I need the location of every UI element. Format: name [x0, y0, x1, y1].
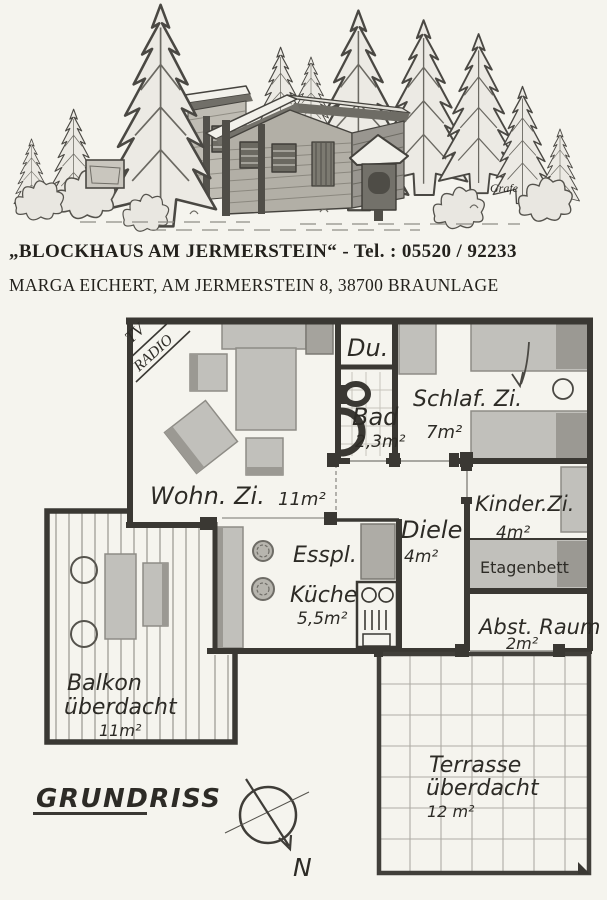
bed-1-pillow [556, 323, 588, 369]
annex-post [203, 116, 210, 198]
balkon-label: Balkon [67, 671, 142, 696]
plan-title: GRUNDRISS [33, 784, 222, 815]
floor-plan: TV RADIO Du. Bad 2,3m² Schlaf. Zi. 7m² W… [0, 310, 607, 900]
sofa-bed [236, 348, 296, 430]
porch-post-left [222, 120, 230, 216]
kueche-label: Küche [290, 583, 357, 608]
room-schlafzimmer-label: Schlaf. Zi. [413, 387, 522, 412]
cabinet-top [306, 323, 333, 354]
room-wohnzimmer-area: 11m² [278, 489, 326, 510]
bed-2-pillow [556, 413, 588, 459]
front-window-1 [240, 142, 260, 168]
kitchen-cabinet-top [361, 524, 395, 579]
room-kinderzimmer-area: 4m² [496, 523, 530, 543]
toilet-icon [344, 384, 368, 404]
compass: N [225, 779, 312, 882]
well-opening [368, 172, 390, 194]
grundriss-underline [33, 812, 147, 815]
kitchen-cabinet-left-edge [217, 527, 223, 648]
terrasse-label: Terrasse [429, 753, 521, 778]
artist-signature: Grafe [490, 181, 519, 195]
cabin [178, 86, 410, 221]
balcony-chair-2 [71, 621, 97, 647]
kueche-area: 5,5m² [297, 609, 348, 629]
room-wohnzimmer-label: Wohn. Zi. [150, 482, 265, 510]
balcony-chair-1 [71, 557, 97, 583]
grundriss-title: GRUNDRISS [36, 784, 222, 814]
letterhead: „BLOCKHAUS AM JERMERSTEIN“ - Tel. : 0552… [9, 241, 517, 296]
kitchen-stool-2 [252, 578, 274, 600]
room-abstellraum-label: Abst. Raum [477, 615, 600, 639]
balcony-table [105, 554, 136, 639]
house-title-and-phone: „BLOCKHAUS AM JERMERSTEIN“ - Tel. : 0552… [9, 241, 517, 263]
compass-north-label: N [293, 853, 312, 882]
room-schlafzimmer-area: 7m² [426, 422, 462, 443]
cabin-illustration: Grafe [0, 0, 607, 238]
room-bad-label: Bad [352, 403, 399, 431]
kueche-essplatz-label: Esspl. [293, 543, 357, 568]
bedroom-stool [553, 379, 573, 399]
balkon-label-2: überdacht [64, 695, 178, 720]
room-dusche-label: Du. [347, 334, 388, 362]
etagenbett-label: Etagenbett [480, 558, 569, 577]
scanned-leaflet-page: Grafe „BLOCKHAUS AM JERMERSTEIN“ - Tel. … [0, 0, 607, 900]
room-diele-area: 4m² [404, 547, 438, 567]
room-kinderzimmer-label: Kinder.Zi. [475, 492, 574, 516]
porch-post-mid [258, 124, 265, 214]
terrasse-area: 12 m² [427, 802, 475, 821]
room-diele-label: Diele [401, 516, 462, 544]
kitchen-stool-1 [253, 541, 273, 561]
balkon-area: 11m² [99, 721, 142, 740]
well-post [374, 210, 383, 221]
balcony-bench-edge [162, 563, 168, 626]
sideboard [222, 322, 306, 349]
armchair-back [190, 354, 198, 391]
room-abstellraum-area: 2m² [506, 634, 539, 653]
owner-address-line: MARGA EICHERT, AM JERMERSTEIN 8, 38700 B… [9, 275, 517, 296]
chair-back [246, 467, 283, 475]
room-bad-area: 2,3m² [355, 432, 406, 452]
terrasse-label-2: überdacht [426, 776, 540, 801]
bedroom-closet [399, 322, 436, 374]
